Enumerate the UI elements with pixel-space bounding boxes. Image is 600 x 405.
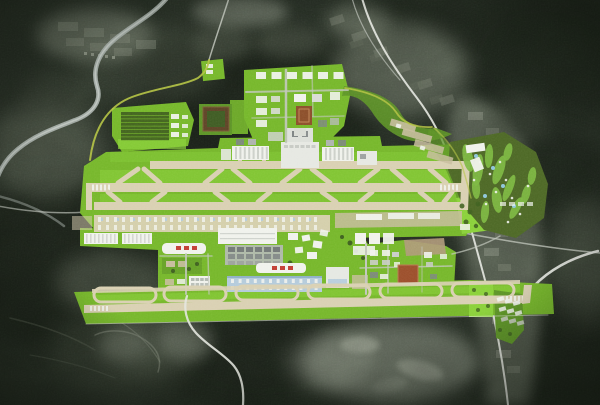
vignette-overlay: [0, 0, 600, 405]
masterplan-scene-canvas: [0, 0, 600, 405]
airport-masterplan-aerial-view: [0, 0, 600, 405]
